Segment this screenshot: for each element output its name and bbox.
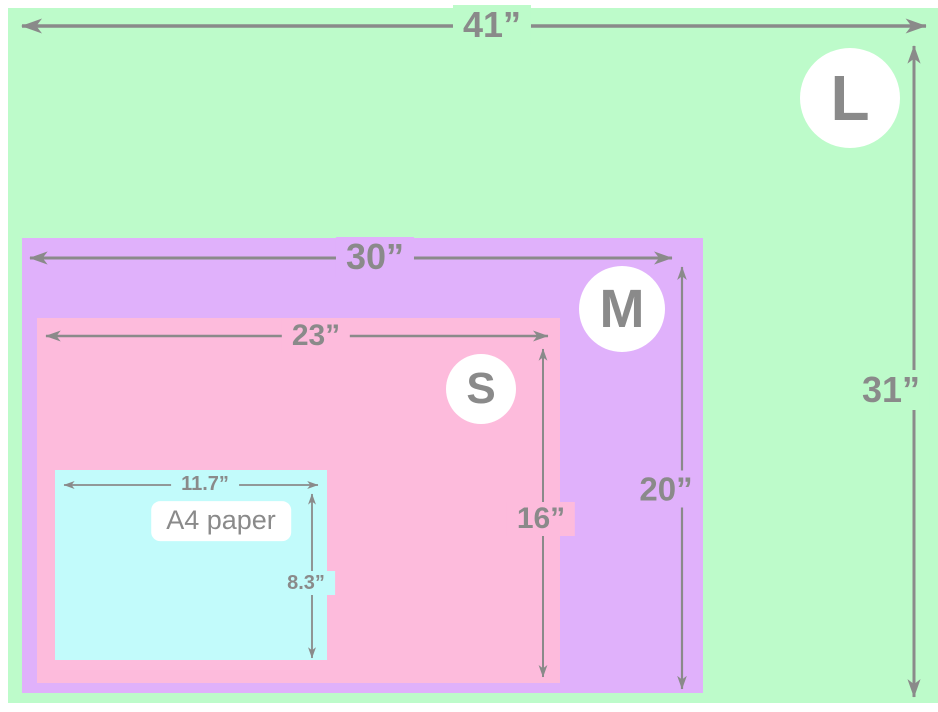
- size-m-badge: M: [579, 266, 665, 352]
- a4-paper-label: A4 paper: [151, 501, 291, 541]
- height-label-a4: 8.3”: [277, 571, 335, 595]
- width-label-s: 23”: [282, 319, 350, 353]
- width-label-l: 41”: [453, 5, 531, 45]
- width-label-m: 30”: [336, 237, 414, 277]
- a4-paper-rectangle: [55, 470, 327, 660]
- height-label-l: 31”: [852, 370, 930, 410]
- height-label-s: 16”: [507, 502, 575, 536]
- size-l-badge: L: [800, 48, 900, 148]
- size-comparison-diagram: 41” 31” 30” 20” 23” 16” 11.7” 8.3” L M S…: [0, 0, 938, 712]
- width-label-a4: 11.7”: [171, 472, 239, 496]
- size-s-badge: S: [446, 354, 516, 424]
- height-label-m: 20”: [629, 471, 702, 508]
